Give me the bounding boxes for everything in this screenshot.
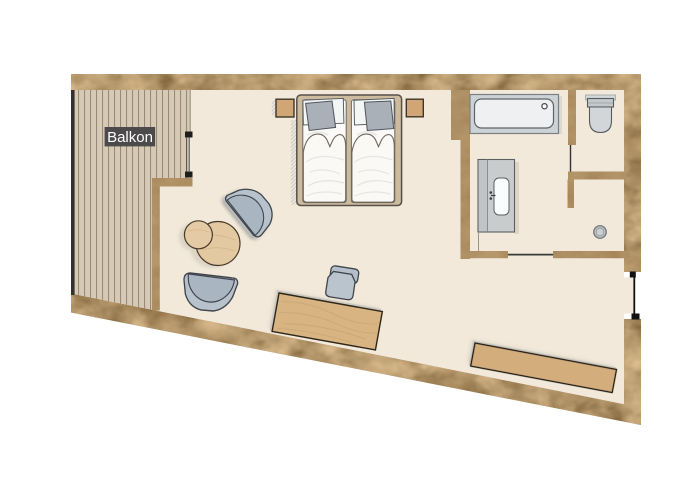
svg-text:Balkon: Balkon [107, 129, 153, 146]
